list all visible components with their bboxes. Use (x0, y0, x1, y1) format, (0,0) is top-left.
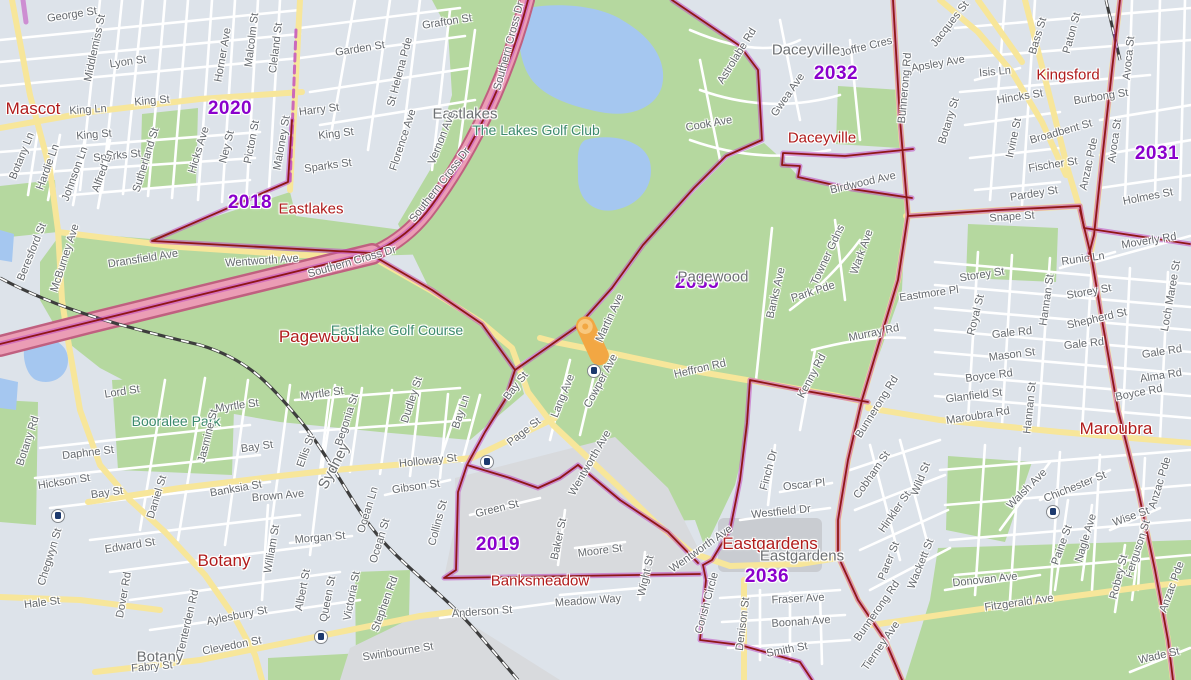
bus-glyph (1050, 508, 1056, 515)
bus-stop-icon[interactable] (314, 630, 328, 644)
bus-stop-icon[interactable] (51, 509, 65, 523)
bus-stop-icon[interactable] (1046, 505, 1060, 519)
map-canvas[interactable]: MascotEastlakesDaceyvilleKingsfordPagewo… (0, 0, 1191, 680)
bus-glyph (55, 512, 61, 519)
bus-glyph (484, 458, 490, 465)
industrial-areas (340, 437, 703, 680)
map-geometry (0, 0, 1191, 680)
bus-glyph (318, 633, 324, 640)
bus-stop-icon[interactable] (480, 455, 494, 469)
bus-stop-icon[interactable] (587, 364, 601, 378)
bus-glyph (591, 367, 597, 374)
